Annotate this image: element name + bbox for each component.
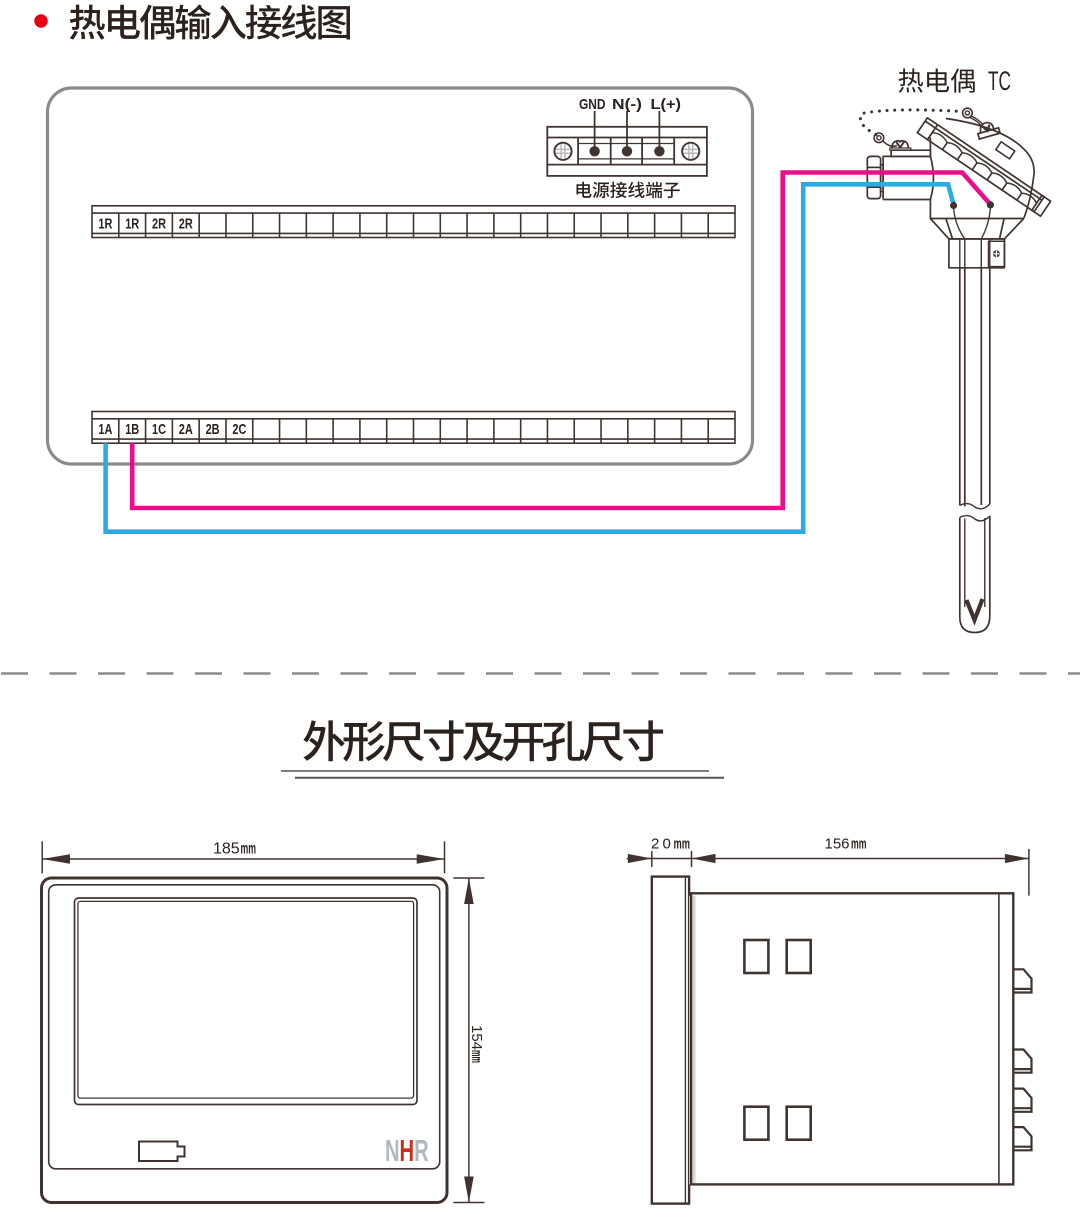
svg-text:185: 185 xyxy=(213,841,240,858)
svg-text:GND: GND xyxy=(579,96,606,113)
svg-text:H: H xyxy=(400,1132,415,1168)
svg-text:156: 156 xyxy=(825,836,850,853)
svg-text:mm: mm xyxy=(241,841,257,858)
svg-text:1R: 1R xyxy=(98,215,112,232)
svg-text:20: 20 xyxy=(651,836,674,853)
svg-text:mm: mm xyxy=(468,1050,485,1063)
svg-text:mm: mm xyxy=(674,836,691,853)
svg-text:2B: 2B xyxy=(206,421,220,438)
svg-text:2C: 2C xyxy=(232,421,246,438)
svg-text:1R: 1R xyxy=(125,215,139,232)
svg-text:L(+): L(+) xyxy=(651,96,682,113)
svg-text:mm: mm xyxy=(851,836,867,853)
svg-text:1C: 1C xyxy=(152,421,166,438)
svg-text:2A: 2A xyxy=(179,421,193,438)
svg-text:2R: 2R xyxy=(179,215,193,232)
svg-text:TC: TC xyxy=(988,66,1011,96)
svg-text:2R: 2R xyxy=(152,215,166,232)
svg-text:R: R xyxy=(414,1132,429,1168)
svg-text:N(-): N(-) xyxy=(612,96,642,113)
svg-text:1B: 1B xyxy=(125,421,139,438)
svg-text:154: 154 xyxy=(468,1025,485,1050)
svg-text:N: N xyxy=(385,1132,400,1168)
svg-text:1A: 1A xyxy=(98,421,112,438)
